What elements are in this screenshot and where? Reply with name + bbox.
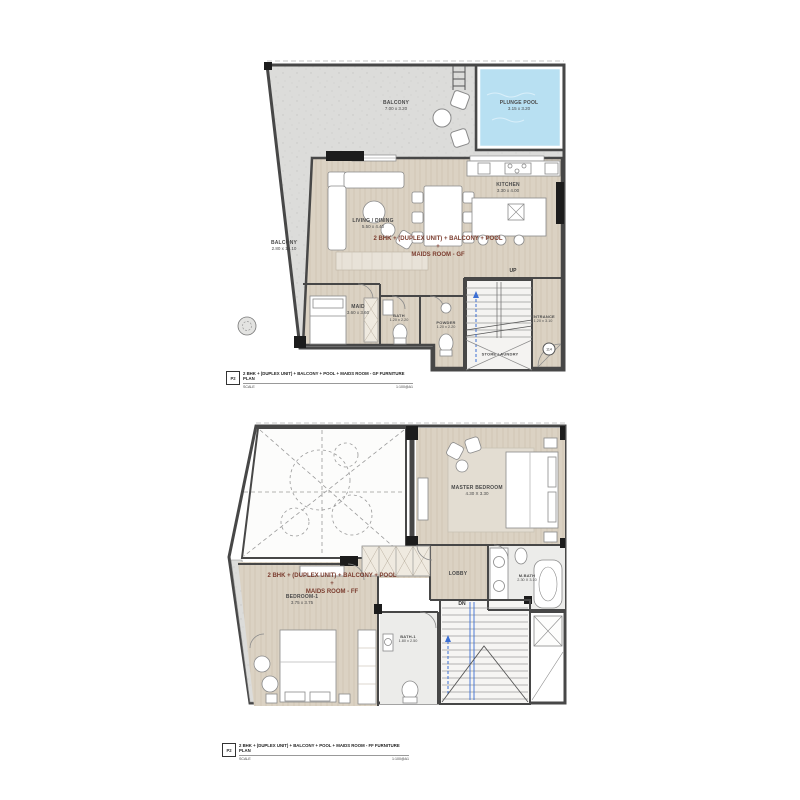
scale-value: 1:100@A1 — [392, 757, 409, 761]
title-block-text: 2 BHK + (DUPLEX UNIT) + BALCONY + POOL +… — [243, 371, 413, 389]
sheet-number-box: P2 — [226, 371, 240, 385]
gf-plan — [238, 61, 564, 370]
scale-label: SCALE — [243, 385, 255, 389]
scale-label: SCALE — [239, 757, 251, 761]
gf-staircase — [466, 280, 532, 370]
floor-plan-drawing — [0, 0, 800, 800]
ff-title-block: P2 2 BHK + (DUPLEX UNIT) + BALCONY + POO… — [222, 743, 409, 761]
plan-title: 2 BHK + (DUPLEX UNIT) + BALCONY + POOL +… — [239, 743, 409, 756]
gf-kitchen-counter — [467, 161, 560, 176]
ff-void-open-to-below — [242, 428, 406, 558]
gf-dining-table — [412, 186, 474, 246]
gf-maid-wardrobe — [364, 298, 378, 342]
gf-maid-bed — [310, 296, 346, 344]
ff-wardrobe — [362, 546, 430, 576]
floor-plan-sheet: BALCONY 7.00 x 3.20 PLUNGE POOL 3.15 x 3… — [0, 0, 800, 800]
plan-title: 2 BHK + (DUPLEX UNIT) + BALCONY + POOL +… — [243, 371, 413, 384]
title-block-text: 2 BHK + (DUPLEX UNIT) + BALCONY + POOL +… — [239, 743, 409, 761]
gf-kitchen-window — [470, 156, 544, 161]
gf-title-block: P2 2 BHK + (DUPLEX UNIT) + BALCONY + POO… — [226, 371, 413, 389]
ff-stair-floor — [440, 600, 530, 704]
scale-value: 1:100@A1 — [396, 385, 413, 389]
ff-plan — [229, 423, 565, 706]
sheet-number-box: P2 — [222, 743, 236, 757]
gf-balcony-planter — [238, 317, 256, 335]
ff-lobby-floor — [430, 545, 490, 600]
